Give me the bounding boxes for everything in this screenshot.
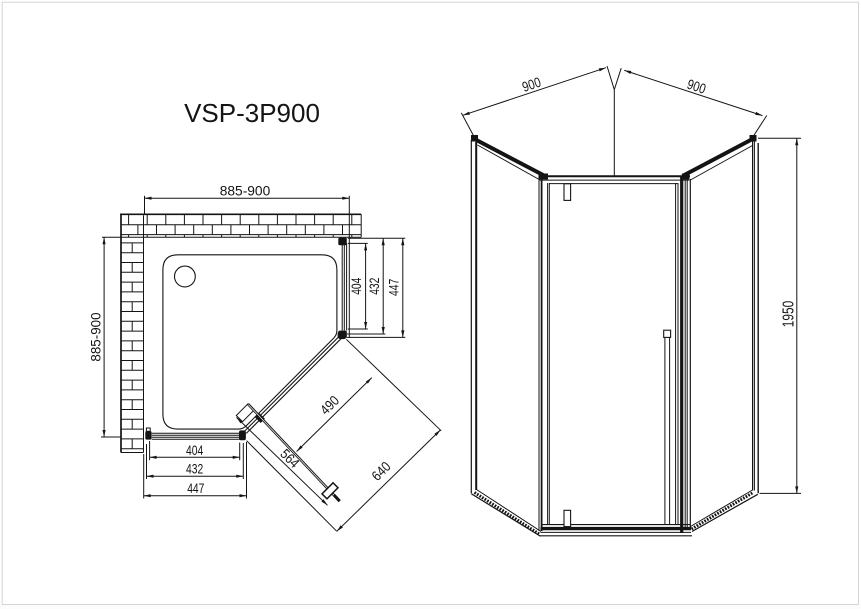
svg-text:432: 432: [186, 462, 203, 477]
svg-text:447: 447: [187, 481, 204, 496]
svg-text:432: 432: [367, 278, 382, 295]
svg-text:885-900: 885-900: [220, 183, 271, 199]
svg-text:1950: 1950: [781, 300, 798, 327]
svg-text:404: 404: [349, 277, 364, 294]
svg-text:447: 447: [386, 279, 401, 296]
svg-text:885-900: 885-900: [88, 312, 104, 361]
svg-text:404: 404: [186, 443, 203, 458]
svg-text:VSP-3P900: VSP-3P900: [184, 98, 320, 128]
